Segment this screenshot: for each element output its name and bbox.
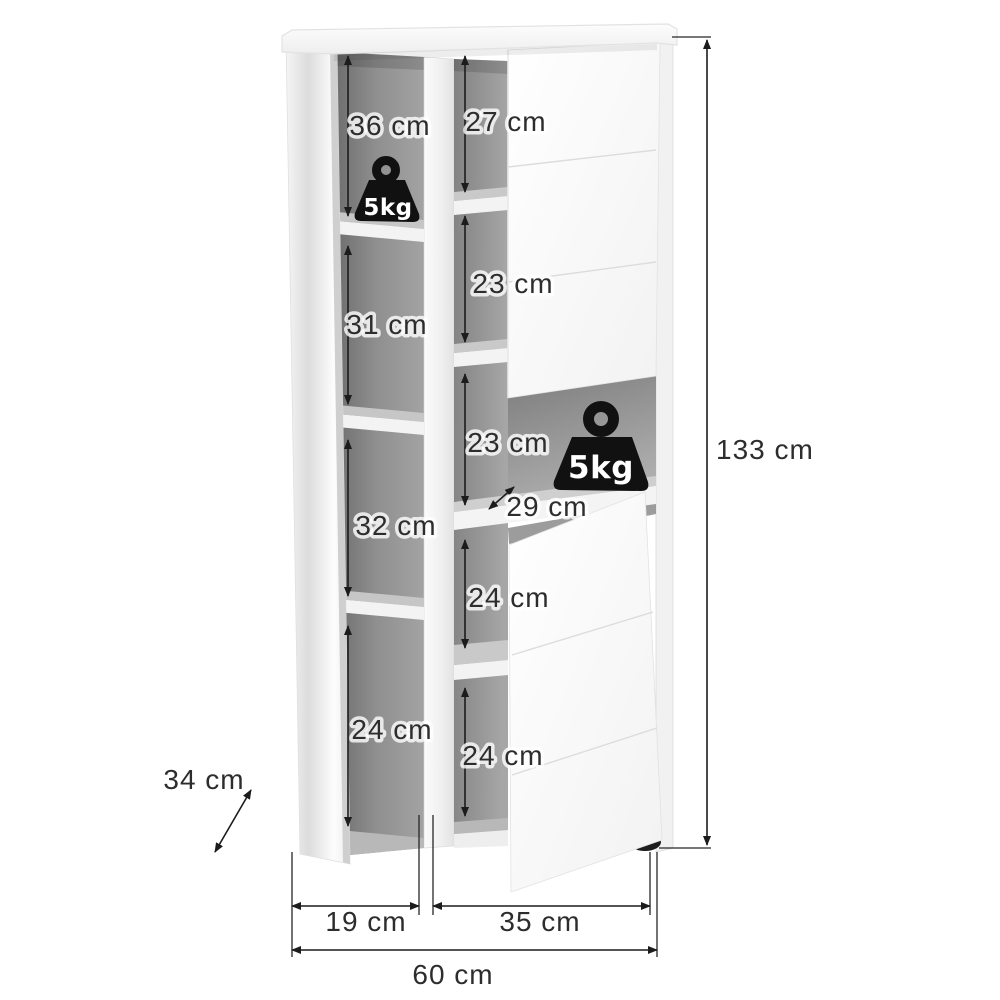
dim-label-right-door-width: 35 cm	[499, 906, 580, 937]
dim-label-left-4: 24 cm	[351, 714, 432, 745]
upper-right-door	[508, 42, 660, 398]
dim-arrow-depth	[215, 790, 251, 852]
load-limit-niche-label: 5kg	[568, 450, 634, 486]
dim-label-left-2: 31 cm	[346, 309, 427, 340]
dim-label-niche-depth: 29 cm	[506, 491, 587, 522]
dim-label-height: 133 cm	[716, 434, 814, 465]
dim-label-left-3: 32 cm	[355, 510, 436, 541]
load-limit-upper-label: 5kg	[363, 195, 412, 221]
dim-label-middle-2: 23 cm	[472, 268, 553, 299]
dim-label-middle-1: 27 cm	[465, 106, 546, 137]
furniture-dimension-diagram: 5kg 5kg	[0, 0, 1000, 1000]
lower-right-door	[509, 492, 662, 892]
dim-label-middle-5: 24 cm	[462, 740, 543, 771]
dim-label-depth: 34 cm	[163, 764, 244, 795]
dim-label-left-1: 36 cm	[349, 110, 430, 141]
diagram-canvas: 5kg 5kg	[0, 0, 1000, 1000]
dim-label-middle-4: 24 cm	[468, 582, 549, 613]
dim-label-left-door-width: 19 cm	[325, 906, 406, 937]
dim-label-total-width: 60 cm	[412, 959, 493, 990]
dim-label-middle-3: 23 cm	[467, 427, 548, 458]
